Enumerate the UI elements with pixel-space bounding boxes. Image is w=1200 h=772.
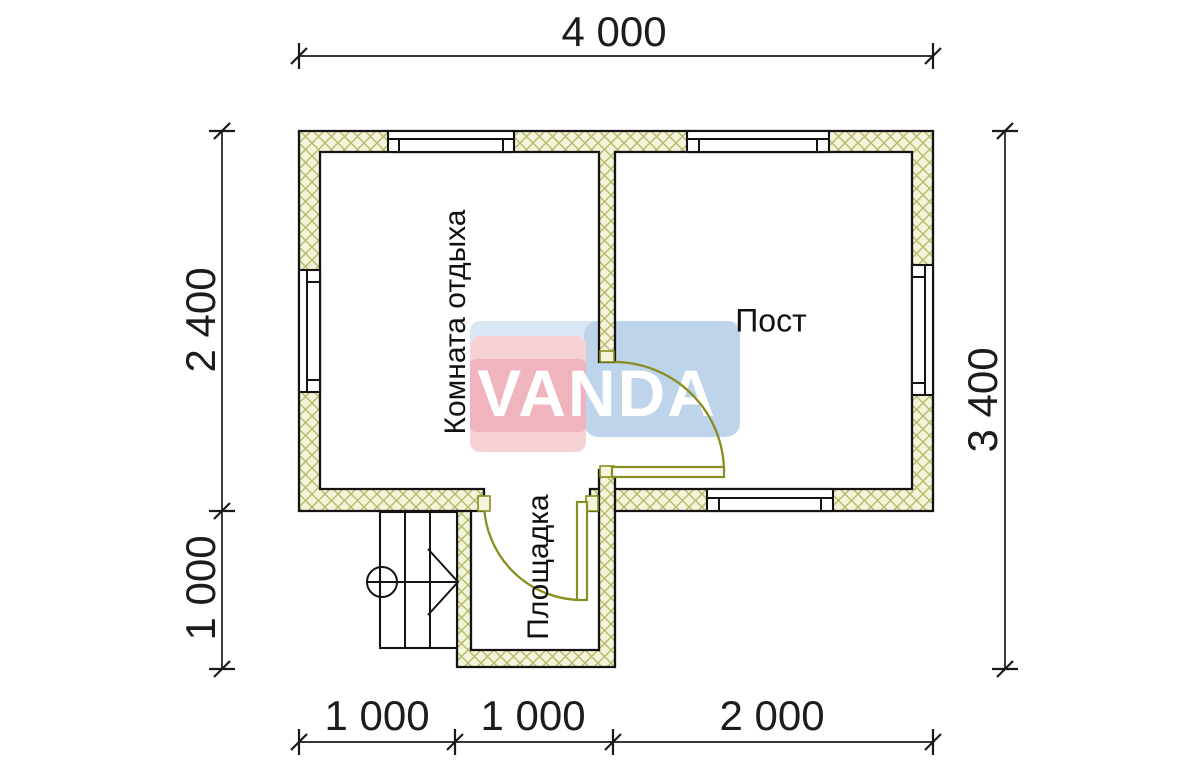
door-entrance-leaf xyxy=(577,502,587,600)
dimension-label-left-upper: 2 400 xyxy=(177,267,225,372)
window-left xyxy=(299,270,320,392)
stairs-outline xyxy=(380,512,457,648)
floor-plan-drawing xyxy=(0,0,1200,772)
partition-lower-porch-right xyxy=(599,470,615,667)
door-entrance-jamb-cap-left xyxy=(478,496,490,511)
dimension-label-right: 3 400 xyxy=(959,347,1007,452)
door-interior xyxy=(600,351,724,477)
dimension-label-bottom-2: 1 000 xyxy=(480,692,585,740)
stairs xyxy=(366,512,458,648)
dimension-label-top: 4 000 xyxy=(561,8,666,56)
door-interior-leaf xyxy=(612,467,724,477)
wall-bottom-left xyxy=(299,489,484,511)
dimension-label-bottom-3: 2 000 xyxy=(719,692,824,740)
dimension-label-bottom-1: 1 000 xyxy=(324,692,429,740)
door-interior-jamb-cap-top xyxy=(600,351,614,362)
room-label-post: Пост xyxy=(735,303,806,340)
window-top-left xyxy=(388,131,514,152)
window-top-right xyxy=(687,131,829,152)
window-bottom xyxy=(707,489,833,511)
dimension-label-left-lower: 1 000 xyxy=(177,535,225,640)
room-label-rest-room: Комната отдыха xyxy=(439,210,473,435)
porch-wall-bottom xyxy=(457,650,615,667)
porch-wall-left xyxy=(457,511,471,667)
partition-upper xyxy=(599,152,615,362)
window-right xyxy=(912,265,933,395)
room-label-porch: Площадка xyxy=(522,494,556,639)
door-interior-swing-arc xyxy=(615,362,724,472)
floor-plan-page: VANDA xyxy=(0,0,1200,772)
